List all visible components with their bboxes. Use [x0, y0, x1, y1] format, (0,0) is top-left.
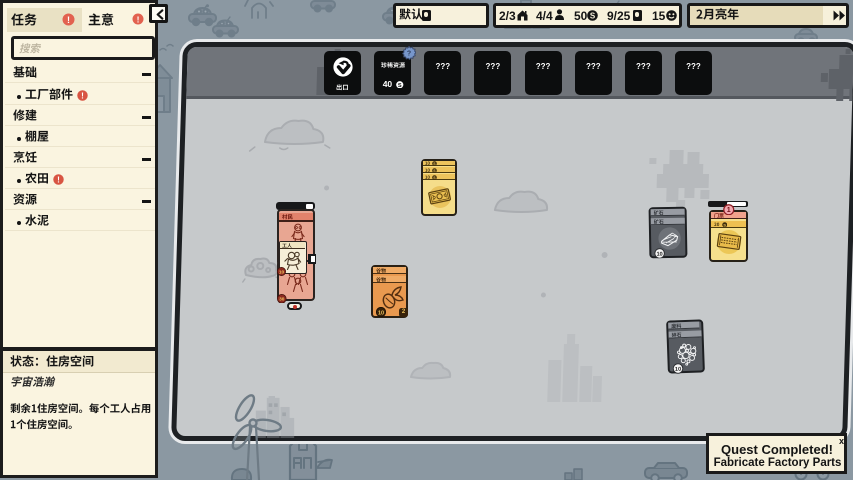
- svg-text:S: S: [723, 222, 726, 227]
- svg-text:10: 10: [675, 367, 681, 373]
- svg-text:!: !: [67, 15, 70, 25]
- svg-text:!: !: [136, 14, 139, 24]
- svg-text:10: 10: [377, 310, 383, 316]
- svg-text:10: 10: [657, 251, 663, 257]
- svg-text:10: 10: [279, 269, 285, 275]
- svg-text:!: !: [57, 175, 60, 184]
- svg-text:S: S: [590, 12, 596, 21]
- svg-text:1: 1: [727, 207, 731, 214]
- svg-text:S: S: [398, 82, 402, 88]
- svg-text:30: 30: [279, 296, 285, 302]
- svg-text:?: ?: [406, 50, 410, 57]
- svg-text:!: !: [81, 91, 84, 100]
